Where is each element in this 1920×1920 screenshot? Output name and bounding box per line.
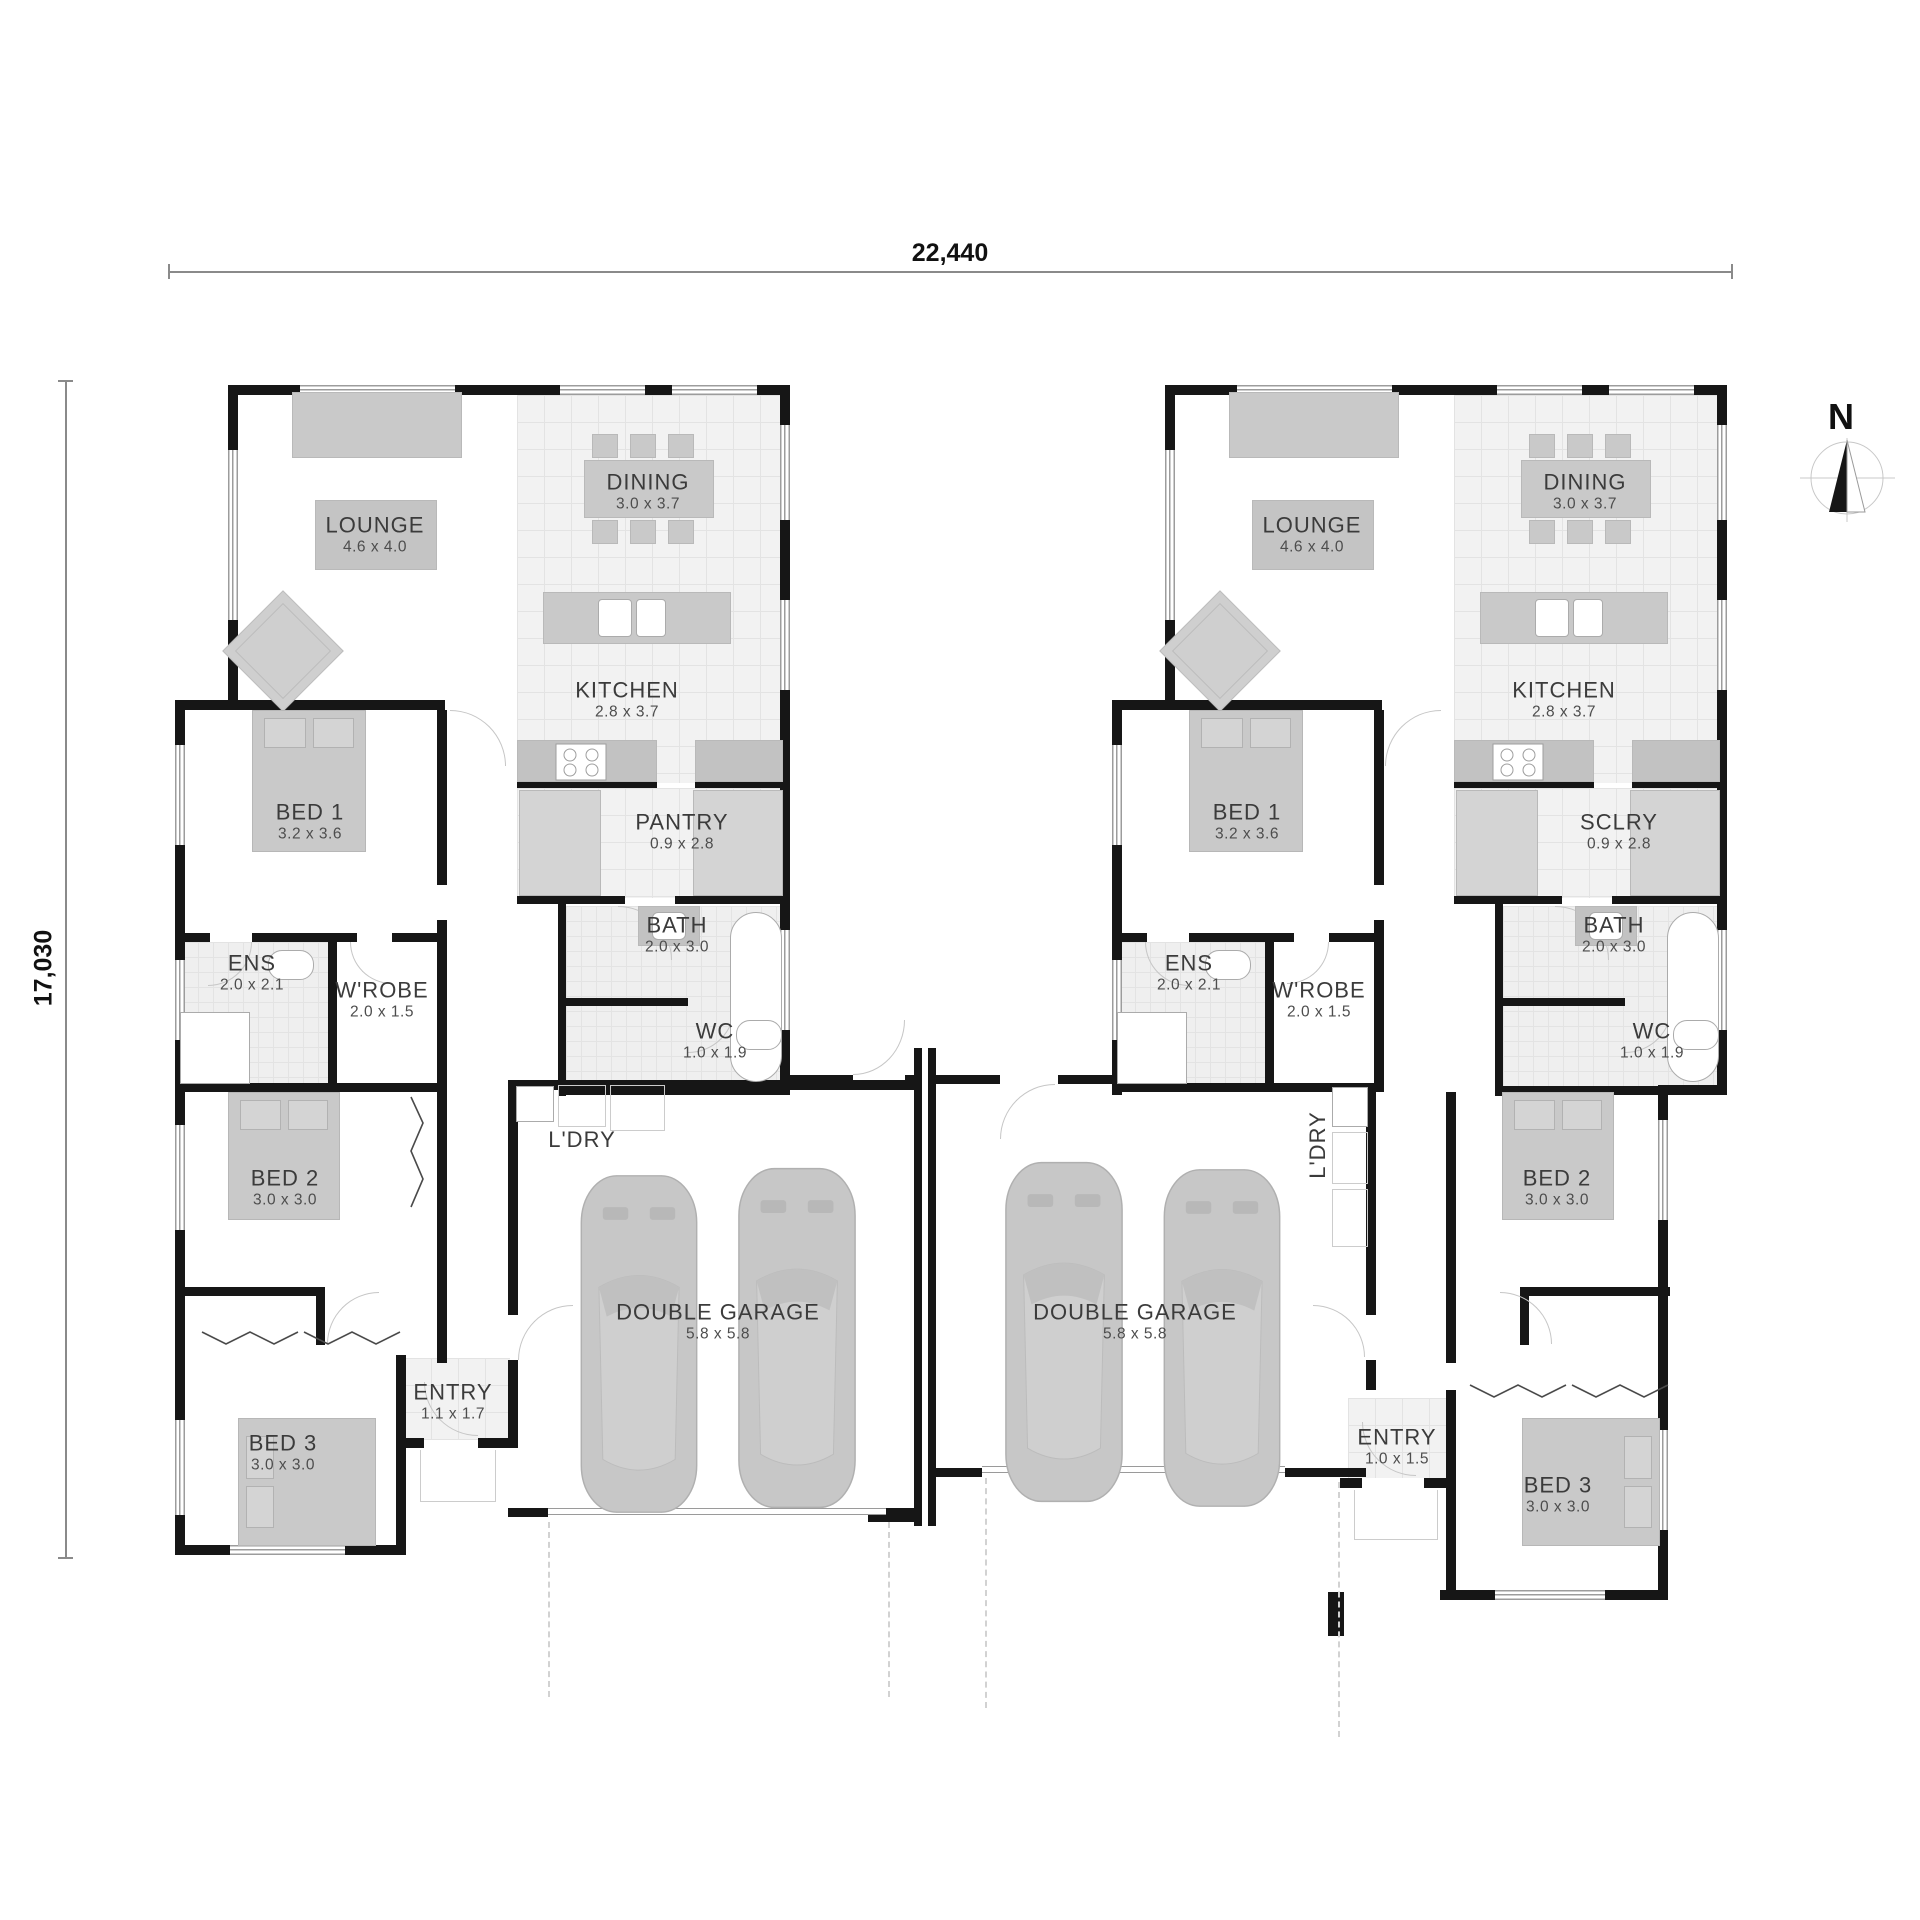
wall	[1112, 933, 1147, 942]
wall	[930, 1075, 1000, 1084]
chair	[1529, 434, 1555, 458]
shower	[180, 1012, 250, 1084]
window	[1495, 1590, 1605, 1600]
door-arc	[1385, 710, 1441, 766]
room-label-bed2-left: BED 2 3.0 x 3.0	[251, 1166, 320, 1211]
wall	[437, 710, 447, 885]
laundry-tub	[1332, 1087, 1368, 1127]
room-label-kitchen-left: KITCHEN 2.8 x 3.7	[575, 678, 679, 723]
dim-tick	[58, 380, 73, 382]
floor-plan: 22,440 17,030 N	[0, 0, 1920, 1920]
wall	[396, 1438, 424, 1448]
chair	[630, 520, 656, 544]
overall-width-dimension: 22,440	[912, 239, 988, 268]
door-arc	[1500, 1292, 1552, 1344]
wall	[508, 1090, 518, 1315]
window	[175, 745, 185, 845]
room-label-sclry-right: SCLRY 0.9 x 2.8	[1580, 810, 1658, 855]
wall	[783, 1075, 853, 1084]
room-label-lounge-right: LOUNGE 4.6 x 4.0	[1263, 513, 1362, 558]
room-label-bed1-right: BED 1 3.2 x 3.6	[1213, 800, 1282, 845]
wall	[558, 998, 688, 1006]
room-label-bed3-right: BED 3 3.0 x 3.0	[1524, 1473, 1593, 1518]
chair	[1605, 520, 1631, 544]
wall	[1446, 1092, 1456, 1363]
wall	[437, 940, 447, 1092]
chair	[592, 520, 618, 544]
wall	[175, 1287, 325, 1296]
wall	[1424, 1478, 1452, 1488]
scullery-shelf	[1456, 790, 1538, 896]
wall	[508, 1508, 548, 1517]
wall	[1495, 998, 1625, 1006]
chair	[630, 434, 656, 458]
room-label-bed3-left: BED 3 3.0 x 3.0	[249, 1431, 318, 1476]
overall-height-dimension: 17,030	[30, 930, 59, 1006]
top-dimension-line	[168, 271, 1732, 273]
wall	[1612, 896, 1720, 904]
room-label-pantry-left: PANTRY 0.9 x 2.8	[635, 810, 728, 855]
window	[175, 1125, 185, 1230]
chair	[668, 434, 694, 458]
kitchen-bench	[1632, 740, 1720, 782]
room-label-bed2-right: BED 2 3.0 x 3.0	[1523, 1166, 1592, 1211]
wall	[1520, 1287, 1670, 1296]
room-label-entry-left: ENTRY 1.1 x 1.7	[413, 1380, 492, 1425]
laundry-tub	[516, 1086, 554, 1122]
wall	[1285, 1468, 1366, 1477]
chair	[1567, 520, 1593, 544]
cooktop-icon	[556, 744, 606, 780]
wall	[175, 933, 210, 942]
window	[1112, 745, 1122, 845]
shower	[1117, 1012, 1187, 1084]
room-label-wrobe-right: W'ROBE 2.0 x 1.5	[1272, 978, 1365, 1023]
sink	[636, 599, 666, 637]
wall	[1189, 933, 1294, 942]
window	[230, 1545, 345, 1555]
wall	[478, 1438, 508, 1448]
dim-tick	[1731, 264, 1733, 279]
door-arc	[450, 710, 506, 766]
room-label-bed1-left: BED 1 3.2 x 3.6	[276, 800, 345, 845]
wall	[675, 896, 783, 904]
wall	[1658, 1085, 1727, 1094]
driveway-line	[985, 1478, 987, 1708]
wall	[175, 700, 445, 710]
appliance	[1332, 1189, 1368, 1247]
wall	[1366, 1360, 1376, 1390]
cooktop-icon	[1493, 744, 1543, 780]
dim-tick	[168, 264, 170, 279]
chair	[1605, 434, 1631, 458]
room-label-garage-left: DOUBLE GARAGE 5.8 x 5.8	[616, 1300, 820, 1345]
bifold-door-icon	[302, 1330, 402, 1348]
driveway-line	[888, 1522, 890, 1697]
window	[1609, 385, 1694, 395]
rug	[1159, 590, 1281, 712]
wall	[517, 896, 625, 904]
room-label-ens-right: ENS 2.0 x 2.1	[1157, 951, 1221, 996]
room-label-wrobe-left: W'ROBE 2.0 x 1.5	[335, 978, 428, 1023]
window	[780, 425, 790, 520]
window	[1717, 425, 1727, 520]
porch	[1354, 1490, 1438, 1540]
wall	[508, 1360, 518, 1448]
chair	[668, 520, 694, 544]
window	[1497, 385, 1582, 395]
porch	[420, 1450, 496, 1502]
wall	[1374, 710, 1384, 885]
room-label-garage-right: DOUBLE GARAGE 5.8 x 5.8	[1033, 1300, 1237, 1345]
room-label-lounge-left: LOUNGE 4.6 x 4.0	[326, 513, 425, 558]
room-label-dining-left: DINING 3.0 x 3.7	[607, 470, 690, 515]
wall	[1454, 896, 1562, 904]
room-label-ens-left: ENS 2.0 x 2.1	[220, 951, 284, 996]
wall	[252, 933, 357, 942]
room-label-wc-right: WC 1.0 x 1.9	[1620, 1019, 1684, 1064]
bifold-door-icon	[1570, 1383, 1670, 1401]
wall	[1446, 1390, 1456, 1600]
bifold-door-icon	[1468, 1383, 1568, 1401]
wall	[905, 1075, 914, 1084]
pantry-shelf	[519, 790, 601, 896]
window	[1717, 600, 1727, 690]
door-arc	[853, 1020, 905, 1075]
wall	[437, 1092, 447, 1363]
door-arc	[1313, 1305, 1365, 1357]
bifold-door-icon	[408, 1095, 426, 1210]
bifold-door-icon	[200, 1330, 300, 1348]
rug	[222, 590, 344, 712]
appliance	[558, 1085, 606, 1127]
chair	[1529, 520, 1555, 544]
room-label-kitchen-right: KITCHEN 2.8 x 3.7	[1512, 678, 1616, 723]
wall	[1112, 700, 1382, 710]
door-arc	[518, 1305, 573, 1360]
party-wall	[928, 1048, 936, 1526]
room-label-ldry-right: L'DRY	[1305, 1111, 1331, 1179]
wall	[928, 1468, 982, 1477]
appliance	[1332, 1132, 1368, 1184]
sink	[598, 599, 632, 637]
north-arrow: N	[1800, 398, 1895, 533]
room-label-wc-left: WC 1.0 x 1.9	[683, 1019, 747, 1064]
driveway-line	[548, 1522, 550, 1697]
room-label-bath-right: BATH 2.0 x 3.0	[1582, 913, 1646, 958]
wall	[1374, 940, 1384, 1092]
dim-tick	[58, 1557, 73, 1559]
party-wall	[914, 1048, 922, 1526]
door-arc	[1000, 1084, 1055, 1139]
wall	[1058, 1075, 1115, 1084]
wall	[1340, 1478, 1362, 1488]
window	[175, 1420, 185, 1515]
chair	[592, 434, 618, 458]
room-label-dining-right: DINING 3.0 x 3.7	[1544, 470, 1627, 515]
window	[228, 450, 238, 620]
room-label-ldry-left: L'DRY	[548, 1127, 616, 1153]
sofa	[292, 392, 462, 458]
window	[560, 385, 645, 395]
window	[780, 600, 790, 690]
sofa	[1229, 392, 1399, 458]
sink	[1535, 599, 1569, 637]
appliance	[610, 1085, 665, 1131]
window	[1658, 1120, 1668, 1220]
room-label-bath-left: BATH 2.0 x 3.0	[645, 913, 709, 958]
room-label-entry-right: ENTRY 1.0 x 1.5	[1357, 1425, 1436, 1470]
compass-icon	[1800, 398, 1895, 533]
kitchen-bench	[695, 740, 783, 782]
sink	[1573, 599, 1603, 637]
window	[672, 385, 757, 395]
driveway-line	[1338, 1482, 1340, 1737]
wall	[396, 1355, 406, 1555]
left-dimension-line	[65, 380, 67, 1558]
wall	[175, 1083, 447, 1092]
window	[1165, 450, 1175, 620]
chair	[1567, 434, 1593, 458]
post	[1328, 1592, 1344, 1636]
